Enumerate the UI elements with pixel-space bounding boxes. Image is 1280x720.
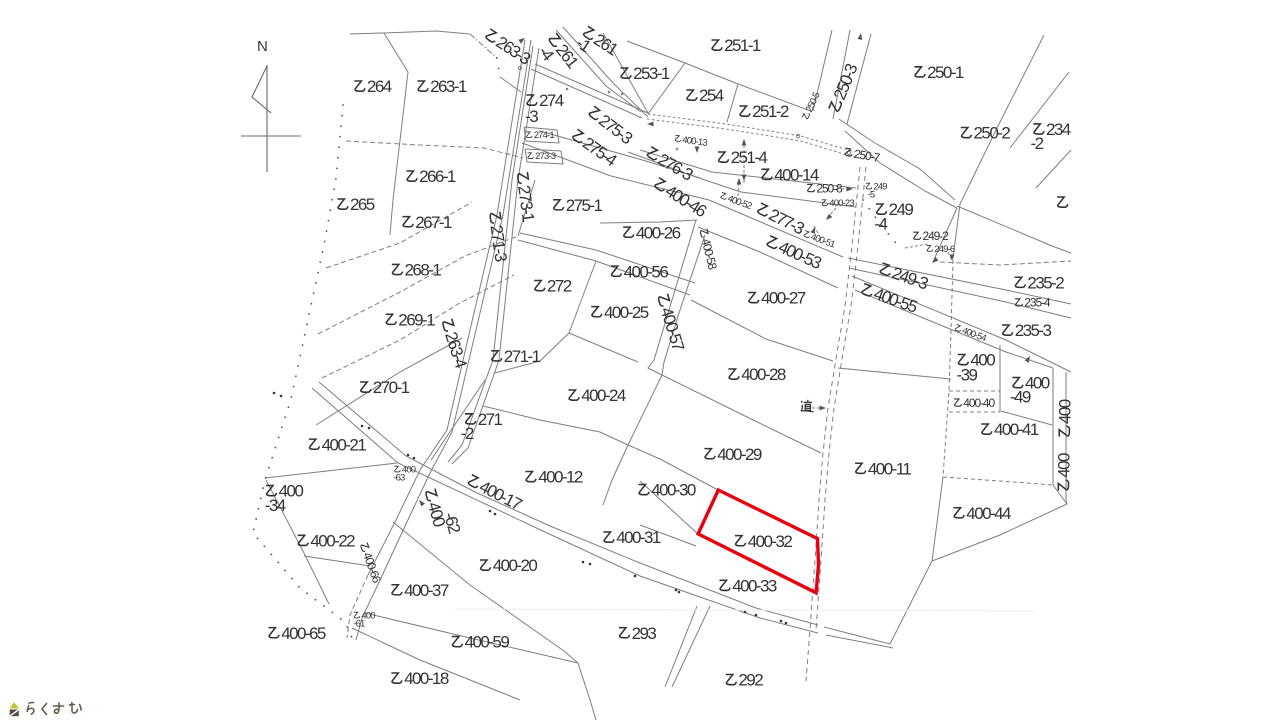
svg-text:-3: -3: [525, 107, 538, 126]
svg-text:266-1: 266-1: [419, 167, 456, 186]
svg-text:292: 292: [738, 671, 763, 690]
svg-text:274-1: 274-1: [534, 130, 555, 141]
svg-text:271-1: 271-1: [504, 347, 541, 366]
svg-text:400-31: 400-31: [616, 528, 661, 547]
svg-text:400-27: 400-27: [761, 289, 806, 308]
svg-text:250-2: 250-2: [974, 124, 1011, 143]
svg-text:400-41: 400-41: [994, 420, 1039, 439]
svg-text:270-1: 270-1: [373, 378, 410, 397]
svg-text:400-30: 400-30: [651, 481, 696, 500]
svg-text:251-1: 251-1: [724, 36, 761, 55]
svg-text:264: 264: [367, 77, 392, 96]
svg-text:272: 272: [547, 277, 572, 296]
svg-text:400-29: 400-29: [717, 445, 762, 464]
svg-text:N: N: [257, 38, 268, 55]
svg-text:-49: -49: [1010, 388, 1031, 407]
svg-text:275-1: 275-1: [566, 196, 603, 215]
svg-text:273-3: 273-3: [535, 151, 556, 162]
svg-text:400-26: 400-26: [636, 223, 681, 242]
svg-text:249-6: 249-6: [934, 244, 955, 255]
svg-text:400-56: 400-56: [624, 262, 669, 281]
svg-text:293: 293: [632, 624, 657, 643]
svg-text:-2: -2: [1031, 134, 1044, 153]
svg-text:249: 249: [889, 200, 914, 219]
svg-text:400-23: 400-23: [829, 198, 854, 209]
svg-text:400-28: 400-28: [741, 365, 786, 384]
svg-text:251-4: 251-4: [731, 148, 768, 167]
svg-text:400-14: 400-14: [774, 166, 819, 185]
svg-text:400: 400: [1055, 453, 1074, 478]
svg-text:400-21: 400-21: [322, 435, 367, 454]
svg-text:235-4: 235-4: [1024, 296, 1051, 310]
svg-text:400-32: 400-32: [748, 532, 793, 551]
svg-text:269-1: 269-1: [398, 310, 435, 329]
svg-text:400-12: 400-12: [538, 468, 583, 487]
svg-text:274: 274: [539, 91, 564, 110]
svg-text:249: 249: [873, 182, 887, 193]
svg-text:-63: -63: [393, 473, 405, 484]
svg-text:400-37: 400-37: [404, 581, 449, 600]
svg-text:400-24: 400-24: [581, 386, 626, 405]
svg-text:-4: -4: [874, 214, 887, 233]
svg-text:400-59: 400-59: [465, 633, 510, 652]
svg-text:400-40: 400-40: [963, 396, 995, 410]
svg-text:249-2: 249-2: [923, 229, 950, 243]
svg-text:265: 265: [350, 195, 375, 214]
svg-text:253-1: 253-1: [633, 64, 670, 83]
svg-text:400-18: 400-18: [404, 669, 449, 688]
svg-text:400-20: 400-20: [493, 556, 538, 575]
svg-text:400-44: 400-44: [966, 504, 1011, 523]
svg-text:263-1: 263-1: [430, 77, 467, 96]
svg-text:250-8: 250-8: [816, 181, 843, 195]
svg-text:400-25: 400-25: [604, 303, 649, 322]
svg-text:-61: -61: [353, 619, 365, 630]
svg-text:-34: -34: [265, 496, 286, 515]
svg-text:400: 400: [1055, 399, 1074, 424]
svg-text:-39: -39: [957, 366, 978, 385]
svg-text:-2: -2: [461, 424, 474, 443]
svg-text:271: 271: [478, 410, 503, 429]
svg-text:235-2: 235-2: [1027, 273, 1064, 292]
svg-text:268-1: 268-1: [405, 261, 442, 280]
svg-text:400-65: 400-65: [281, 624, 326, 643]
svg-text:400-11: 400-11: [868, 459, 911, 478]
svg-text:234: 234: [1046, 120, 1071, 139]
svg-text:251-2: 251-2: [752, 102, 789, 121]
svg-text:400-33: 400-33: [732, 577, 777, 596]
svg-text:250-1: 250-1: [927, 63, 964, 82]
svg-text:254: 254: [699, 86, 724, 105]
svg-text:400-22: 400-22: [310, 532, 355, 551]
svg-text:235-3: 235-3: [1015, 321, 1052, 340]
svg-text:267-1: 267-1: [415, 213, 452, 232]
svg-text:-5: -5: [868, 190, 875, 201]
